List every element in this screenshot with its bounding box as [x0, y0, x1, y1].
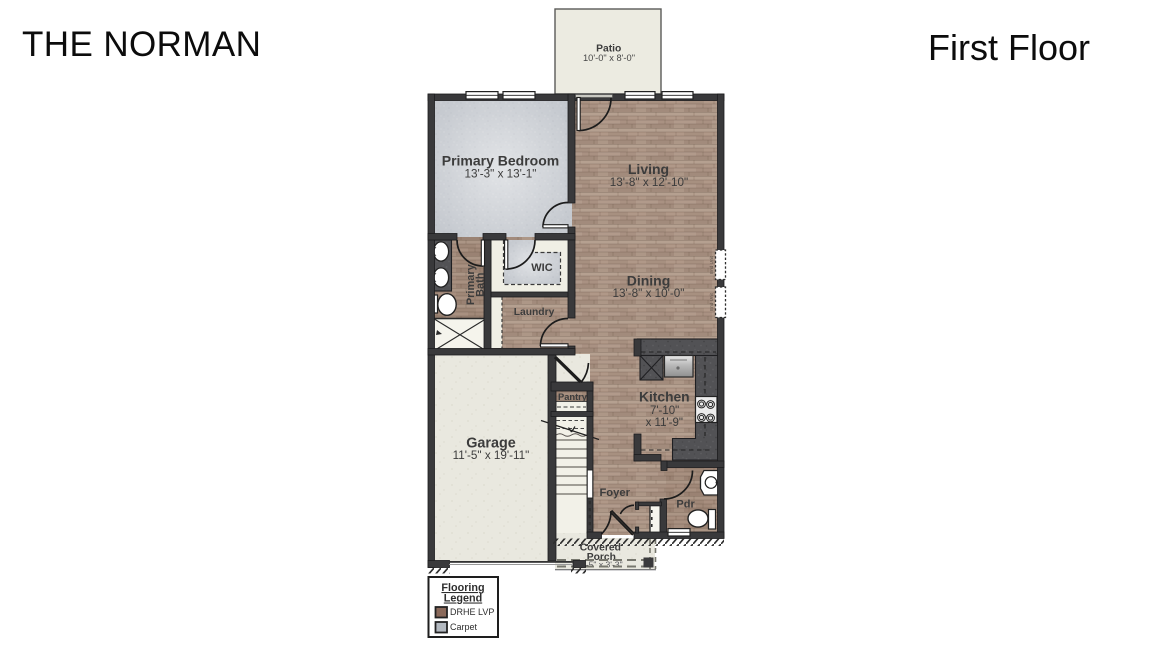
- svg-text:Primary Bedroom: Primary Bedroom: [442, 153, 559, 169]
- svg-text:First Floor: First Floor: [928, 27, 1090, 68]
- svg-text:WIC: WIC: [531, 262, 552, 274]
- svg-text:DRHE LVP: DRHE LVP: [450, 607, 494, 617]
- svg-text:Laundry: Laundry: [514, 307, 555, 318]
- svg-text:Legend: Legend: [444, 593, 482, 605]
- svg-text:End Unit: End Unit: [709, 292, 714, 310]
- svg-text:THE NORMAN: THE NORMAN: [22, 25, 261, 64]
- svg-text:Carpet: Carpet: [450, 622, 478, 632]
- svg-text:Pdr: Pdr: [676, 499, 695, 511]
- svg-text:13'-8" x 10'-0": 13'-8" x 10'-0": [613, 287, 685, 300]
- svg-text:Foyer: Foyer: [599, 487, 630, 499]
- svg-text:Living: Living: [628, 161, 669, 177]
- svg-text:13'-3" x 13'-1": 13'-3" x 13'-1": [465, 168, 537, 181]
- svg-text:End Unit: End Unit: [709, 255, 714, 273]
- svg-text:Kitchen: Kitchen: [639, 390, 690, 405]
- svg-text:11'-5" x 19'-11": 11'-5" x 19'-11": [453, 449, 530, 462]
- svg-text:10'-0" x 8'-0": 10'-0" x 8'-0": [583, 53, 635, 63]
- svg-text:x 11'-9": x 11'-9": [646, 417, 683, 429]
- svg-text:Bath: Bath: [475, 272, 487, 297]
- svg-text:Pantry: Pantry: [558, 392, 588, 402]
- svg-text:13'-8" x 12'-10": 13'-8" x 12'-10": [610, 176, 688, 189]
- svg-text:7'-10": 7'-10": [650, 405, 679, 417]
